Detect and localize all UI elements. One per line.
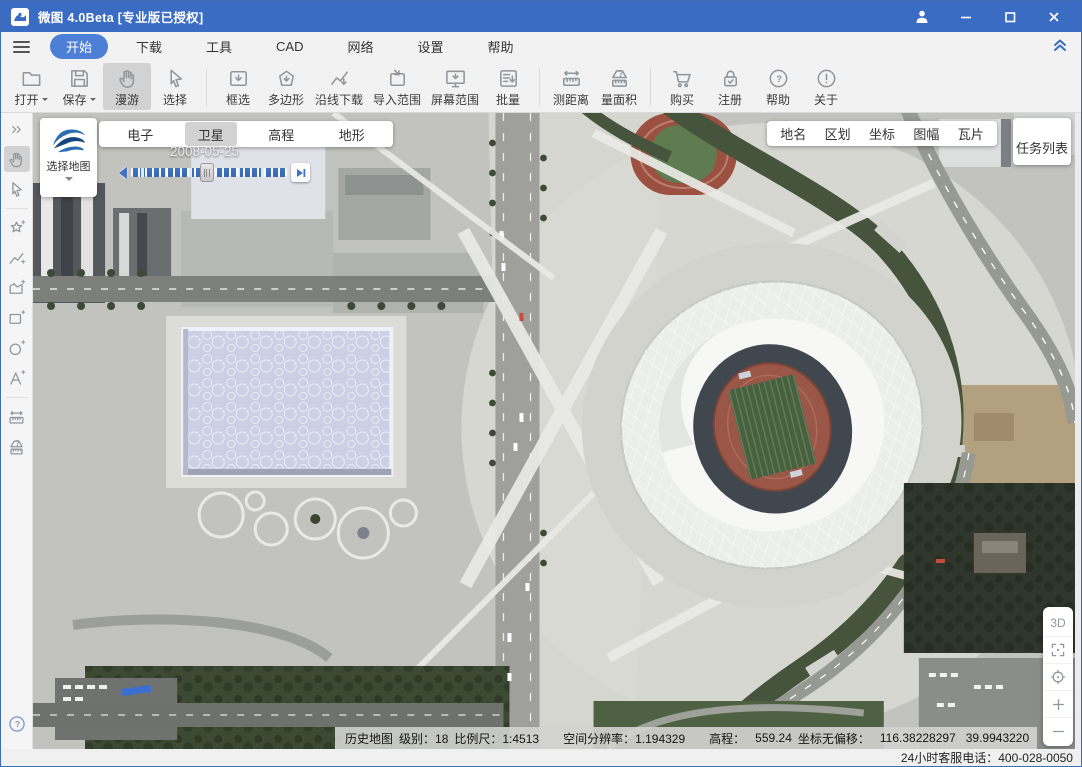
status-scale: 比例尺：1:4513 [454, 730, 539, 747]
zoom-out-button[interactable] [1043, 717, 1073, 744]
status-elevation-value: 559.24 [755, 731, 792, 745]
sidebar-help-button[interactable]: ? [4, 711, 30, 737]
maximize-button[interactable] [1001, 8, 1019, 26]
menu-item-tools[interactable]: 工具 [190, 34, 248, 59]
status-elevation-label: 高程： [709, 730, 745, 747]
sidebar-measure-area-tool[interactable]: ? [4, 434, 30, 460]
menu-item-help[interactable]: 帮助 [472, 34, 530, 59]
minimize-button[interactable] [957, 8, 975, 26]
select-map-label: 选择地图 [47, 158, 91, 174]
folder-open-icon [20, 67, 43, 90]
measure-distance-icon [560, 67, 583, 90]
polygon-select-button[interactable]: 多边形 [262, 63, 310, 110]
screen-extent-button[interactable]: 屏幕范围 [426, 63, 484, 110]
tab-elevation-map[interactable]: 高程 [255, 122, 307, 146]
map-status-bar: 历史地图 级别：18 比例尺：1:4513 空间分辨率：1.194329 高程：… [335, 727, 1037, 749]
locate-button[interactable] [1043, 663, 1073, 690]
svg-text:?: ? [617, 68, 623, 79]
svg-text:?: ? [15, 719, 20, 729]
polyline-download-icon [328, 67, 351, 90]
sidebar-separator [6, 397, 28, 398]
box-select-button[interactable]: 框选 [214, 63, 262, 110]
status-coords-label: 坐标无偏移： [798, 730, 870, 747]
sidebar-separator [6, 208, 28, 209]
zoom-in-button[interactable] [1043, 690, 1073, 717]
sidebar-draw-rect-tool[interactable] [4, 305, 30, 331]
user-account-icon[interactable] [913, 8, 931, 26]
tab-terrain-map[interactable]: 地形 [326, 122, 378, 146]
measure-distance-button[interactable]: 测距离 [547, 63, 595, 110]
status-zoom-level: 级别：18 [399, 730, 448, 747]
svg-text:?: ? [776, 73, 782, 84]
select-button[interactable]: 选择 [151, 63, 199, 110]
sidebar-draw-polygon-tool[interactable] [4, 275, 30, 301]
sidebar-expand-icon[interactable] [4, 116, 30, 142]
window-title: 微图 4.0Beta [专业版已授权] [38, 7, 203, 26]
task-list-button[interactable]: 任务列表 [1013, 118, 1071, 165]
collapse-ribbon-icon[interactable] [1051, 36, 1069, 57]
tab-satellite-map[interactable]: 卫星 [185, 122, 237, 146]
main-area: ? ? [1, 113, 1081, 749]
help-icon: ? [767, 67, 790, 90]
lock-icon [719, 67, 742, 90]
timeline-prev-icon[interactable] [113, 167, 127, 179]
svg-text:?: ? [15, 438, 20, 447]
app-logo-icon [11, 8, 29, 26]
status-resolution: 空间分辨率：1.194329 [563, 730, 685, 747]
polygon-download-icon [275, 67, 298, 90]
menu-item-download[interactable]: 下载 [120, 34, 178, 59]
close-button[interactable] [1045, 8, 1063, 26]
buy-button[interactable]: 购买 [658, 63, 706, 110]
box-download-icon [227, 67, 250, 90]
hand-icon [116, 67, 139, 90]
toggle-place-names[interactable]: 地名 [776, 122, 810, 145]
batch-button[interactable]: 批量 [484, 63, 532, 110]
batch-icon [497, 67, 520, 90]
footer-bar: 24小时客服电话：400-028-0050 [1, 749, 1081, 766]
menu-item-settings[interactable]: 设置 [402, 34, 460, 59]
timeline-slider[interactable] [131, 168, 287, 177]
tab-vector-map[interactable]: 电子 [114, 122, 166, 146]
cursor-icon [164, 67, 187, 90]
toolbar-separator [539, 68, 540, 106]
status-latitude: 39.9943220 [966, 731, 1029, 745]
menu-item-network[interactable]: 网络 [332, 34, 390, 59]
sidebar-select-tool[interactable] [4, 176, 30, 202]
help-button[interactable]: ? 帮助 [754, 63, 802, 110]
menu-item-start[interactable]: 开始 [50, 34, 108, 59]
save-button[interactable]: 保存 [55, 63, 103, 110]
sidebar-pan-tool[interactable] [4, 146, 30, 172]
service-phone: 24小时客服电话：400-028-0050 [901, 749, 1073, 766]
measure-area-button[interactable]: ? 量面积 [595, 63, 643, 110]
pan-button[interactable]: 漫游 [103, 63, 151, 110]
screen-extent-icon [444, 67, 467, 90]
status-map-type: 历史地图 [345, 730, 393, 747]
toggle-tiles[interactable]: 瓦片 [954, 122, 988, 145]
timeline-date: 2008-05-25 [170, 144, 323, 159]
measure-area-icon: ? [608, 67, 631, 90]
menu-item-cad[interactable]: CAD [260, 36, 319, 57]
import-extent-icon [386, 67, 409, 90]
timeline-next-button[interactable] [291, 163, 310, 182]
overlay-toggle-bar: 地名 区划 坐标 图幅 瓦片 [767, 121, 997, 146]
fullscreen-button[interactable] [1043, 636, 1073, 663]
about-button[interactable]: 关于 [802, 63, 850, 110]
toggle-map-sheets[interactable]: 图幅 [909, 122, 943, 145]
sidebar-measure-distance-tool[interactable] [4, 404, 30, 430]
history-timeline: 2008-05-25 [113, 144, 323, 182]
hamburger-menu-icon[interactable] [13, 41, 30, 53]
import-extent-button[interactable]: 导入范围 [368, 63, 426, 110]
toggle-districts[interactable]: 区划 [821, 122, 855, 145]
register-button[interactable]: 注册 [706, 63, 754, 110]
app-window: 微图 4.0Beta [专业版已授权] 开始 下载 工具 CAD 网络 设置 帮… [0, 0, 1082, 767]
mode-3d-button[interactable]: 3D [1043, 609, 1073, 636]
menu-bar: 开始 下载 工具 CAD 网络 设置 帮助 [1, 32, 1081, 61]
cart-icon [671, 67, 694, 90]
about-icon [815, 67, 838, 90]
sidebar-draw-region-tool[interactable] [4, 215, 30, 241]
select-map-button[interactable]: 选择地图 [40, 118, 97, 197]
water-cube [166, 316, 406, 488]
map-canvas[interactable] [33, 113, 1075, 749]
map-viewport: 选择地图 电子 卫星 高程 地形 2008-05-25 [33, 113, 1075, 749]
sidebar-draw-circle-tool[interactable] [4, 335, 30, 361]
timeline-slider-handle[interactable] [200, 163, 214, 182]
title-bar: 微图 4.0Beta [专业版已授权] [1, 1, 1081, 32]
status-longitude: 116.38228297 [880, 731, 956, 745]
chevron-down-icon [65, 177, 73, 185]
open-button[interactable]: 打开 [7, 63, 55, 110]
left-tool-sidebar: ? ? [1, 113, 33, 749]
sidebar-add-text-tool[interactable] [4, 365, 30, 391]
toggle-coordinates[interactable]: 坐标 [865, 122, 899, 145]
toolbar-separator [650, 68, 651, 106]
globe-logo-icon [50, 123, 88, 157]
save-icon [68, 67, 91, 90]
toolbar-separator [206, 68, 207, 106]
along-line-download-button[interactable]: 沿线下载 [310, 63, 368, 110]
sidebar-draw-polyline-tool[interactable] [4, 245, 30, 271]
view-control-panel: 3D [1043, 607, 1073, 746]
ribbon-toolbar: 打开 保存 漫游 选择 框选 多边形 沿线下载 导入范围 [1, 61, 1081, 113]
